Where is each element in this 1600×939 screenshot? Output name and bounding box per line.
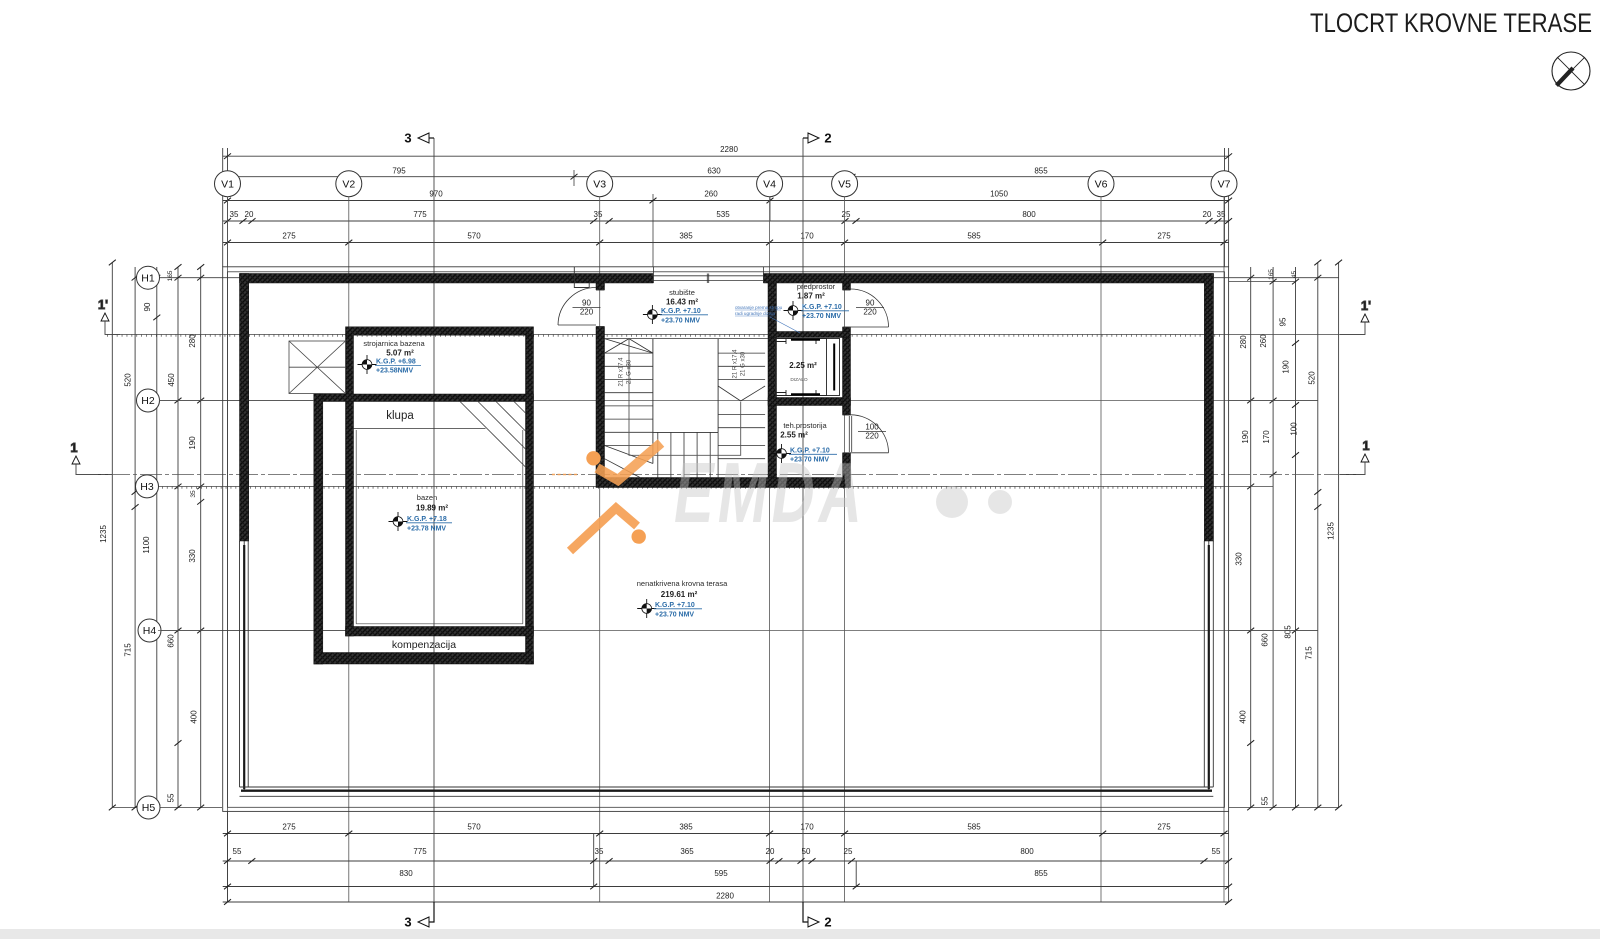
svg-text:3: 3: [404, 131, 411, 146]
svg-text:V2: V2: [342, 179, 355, 191]
svg-text:25: 25: [842, 210, 851, 219]
svg-text:K.G.P. +7.10: K.G.P. +7.10: [655, 602, 695, 609]
svg-text:21 G x30: 21 G x30: [741, 351, 747, 376]
svg-text:klupa: klupa: [386, 410, 414, 422]
svg-text:970: 970: [429, 190, 443, 199]
svg-text:2: 2: [824, 131, 831, 146]
svg-text:35: 35: [1217, 210, 1226, 219]
svg-text:715: 715: [124, 643, 133, 657]
svg-text:TLOCRT KROVNE TERASE: TLOCRT KROVNE TERASE: [1310, 8, 1592, 38]
svg-text:90: 90: [582, 299, 591, 308]
svg-text:H1: H1: [141, 272, 155, 284]
svg-text:330: 330: [1235, 552, 1244, 566]
svg-text:K.G.P. +7.10: K.G.P. +7.10: [802, 304, 842, 311]
svg-text:775: 775: [413, 210, 427, 219]
svg-text:385: 385: [679, 232, 693, 241]
svg-text:100: 100: [1290, 422, 1299, 436]
svg-text:21 G x30: 21 G x30: [627, 359, 633, 384]
svg-text:190: 190: [1282, 360, 1291, 374]
svg-text:V5: V5: [838, 179, 851, 191]
svg-text:275: 275: [282, 823, 296, 832]
svg-text:400: 400: [190, 710, 199, 724]
svg-text:190: 190: [188, 436, 197, 450]
svg-text:260: 260: [1259, 334, 1268, 348]
svg-text:260: 260: [704, 190, 718, 199]
svg-text:55: 55: [1212, 847, 1221, 856]
svg-text:855: 855: [1034, 869, 1048, 878]
svg-text:660: 660: [1261, 633, 1270, 647]
svg-text:220: 220: [863, 308, 877, 317]
svg-text:25: 25: [844, 847, 853, 856]
svg-text:V4: V4: [763, 179, 776, 191]
svg-text:775: 775: [413, 847, 427, 856]
svg-text:275: 275: [1157, 232, 1171, 241]
svg-text:595: 595: [714, 869, 728, 878]
svg-text:170: 170: [800, 232, 814, 241]
svg-text:385: 385: [679, 823, 693, 832]
svg-text:55: 55: [233, 847, 242, 856]
svg-text:95: 95: [1279, 317, 1288, 326]
svg-text:otvaranje prema stropu: otvaranje prema stropu: [735, 305, 783, 310]
svg-text:275: 275: [282, 232, 296, 241]
svg-text:DIZALO: DIZALO: [790, 377, 808, 383]
svg-text:585: 585: [967, 823, 981, 832]
svg-text:kompenzacija: kompenzacija: [392, 639, 456, 651]
svg-text:3: 3: [404, 915, 411, 930]
svg-text:teh.prostorija: teh.prostorija: [783, 421, 827, 430]
svg-text:H3: H3: [140, 481, 154, 493]
svg-text:55: 55: [167, 793, 176, 802]
svg-text:strojarnica bazena: strojarnica bazena: [363, 339, 425, 348]
svg-text:2280: 2280: [720, 145, 738, 154]
svg-text:1050: 1050: [990, 190, 1008, 199]
svg-text:1.87 m²: 1.87 m²: [797, 292, 825, 301]
svg-text:35: 35: [230, 210, 239, 219]
svg-text:855: 855: [1034, 167, 1048, 176]
svg-text:520: 520: [1308, 371, 1317, 385]
svg-text:535: 535: [716, 210, 730, 219]
svg-text:21 R x17.4: 21 R x17.4: [619, 357, 625, 387]
svg-text:45: 45: [1291, 271, 1298, 279]
svg-text:2280: 2280: [716, 892, 734, 901]
svg-text:190: 190: [1241, 430, 1250, 444]
svg-text:21 R x17.4: 21 R x17.4: [733, 349, 739, 379]
svg-text:19.89 m²: 19.89 m²: [416, 504, 448, 513]
svg-text:1235: 1235: [1327, 522, 1336, 540]
svg-text:stubište: stubište: [669, 288, 695, 297]
svg-text:1: 1: [1362, 438, 1369, 453]
svg-text:170: 170: [1262, 430, 1271, 444]
svg-text:220: 220: [865, 432, 879, 441]
svg-text:165: 165: [167, 270, 174, 281]
svg-text:+23.78 NMV: +23.78 NMV: [407, 525, 446, 532]
svg-text:K.G.P. +7.18: K.G.P. +7.18: [407, 516, 447, 523]
svg-text:EMDA: EMDA: [674, 446, 866, 541]
svg-text:90: 90: [143, 302, 152, 311]
svg-text:35: 35: [594, 210, 603, 219]
svg-text:280: 280: [1239, 335, 1248, 349]
svg-text:V7: V7: [1218, 179, 1231, 191]
svg-text:400: 400: [1239, 710, 1248, 724]
svg-text:1: 1: [70, 440, 77, 455]
svg-text:55: 55: [1261, 796, 1270, 805]
svg-text:20: 20: [1203, 210, 1212, 219]
svg-text:nenatkrivena krovna terasa: nenatkrivena krovna terasa: [637, 579, 728, 588]
svg-text:365: 365: [680, 847, 694, 856]
svg-text:570: 570: [467, 823, 481, 832]
svg-text:165: 165: [1268, 269, 1275, 280]
svg-text:20: 20: [766, 847, 775, 856]
svg-text:1100: 1100: [142, 536, 151, 554]
svg-text:V1: V1: [221, 179, 234, 191]
svg-text:570: 570: [467, 232, 481, 241]
svg-text:K.G.P. +7.10: K.G.P. +7.10: [661, 308, 701, 315]
svg-text:795: 795: [392, 167, 406, 176]
svg-text:V6: V6: [1095, 179, 1108, 191]
svg-text:2.55 m²: 2.55 m²: [780, 431, 808, 440]
svg-text:800: 800: [1020, 847, 1034, 856]
svg-text:20: 20: [245, 210, 254, 219]
svg-text:219.61 m²: 219.61 m²: [661, 590, 698, 599]
svg-text:V3: V3: [593, 179, 606, 191]
svg-text:220: 220: [580, 308, 594, 317]
svg-text:630: 630: [707, 167, 721, 176]
svg-text:K.G.P. +6.98: K.G.P. +6.98: [376, 359, 416, 366]
svg-text:100: 100: [865, 423, 879, 432]
svg-text:2: 2: [824, 915, 831, 930]
svg-text:830: 830: [399, 869, 413, 878]
svg-text:+23.70 NMV: +23.70 NMV: [802, 313, 841, 320]
svg-text:805: 805: [1284, 625, 1293, 639]
svg-text:H4: H4: [143, 625, 157, 637]
svg-text:1': 1': [98, 297, 108, 312]
svg-text:H2: H2: [141, 395, 155, 407]
svg-text:+23.70 NMV: +23.70 NMV: [661, 318, 700, 325]
svg-text:800: 800: [1022, 210, 1036, 219]
svg-text:1': 1': [1361, 298, 1371, 313]
svg-text:450: 450: [167, 373, 176, 387]
svg-text:585: 585: [967, 232, 981, 241]
svg-text:H5: H5: [142, 802, 156, 814]
svg-text:330: 330: [188, 549, 197, 563]
svg-text:35: 35: [595, 847, 604, 856]
svg-text:2.25 m²: 2.25 m²: [789, 361, 817, 370]
svg-text:16.43 m²: 16.43 m²: [666, 298, 698, 307]
svg-text:90: 90: [866, 299, 875, 308]
svg-text:520: 520: [124, 373, 133, 387]
svg-text:170: 170: [800, 823, 814, 832]
svg-text:bazen: bazen: [417, 493, 437, 502]
svg-text:50: 50: [802, 847, 811, 856]
svg-text:predprostor: predprostor: [797, 282, 836, 291]
svg-text:715: 715: [1305, 646, 1314, 660]
svg-text:275: 275: [1157, 823, 1171, 832]
svg-text:+23.58NMV: +23.58NMV: [376, 368, 413, 375]
svg-text:660: 660: [167, 634, 176, 648]
svg-text:1235: 1235: [99, 525, 108, 543]
svg-text:+23.70 NMV: +23.70 NMV: [655, 611, 694, 618]
svg-text:35: 35: [190, 490, 197, 498]
svg-text:radi ugradnje dizala: radi ugradnje dizala: [735, 311, 776, 316]
svg-text:5.07 m²: 5.07 m²: [386, 349, 414, 358]
